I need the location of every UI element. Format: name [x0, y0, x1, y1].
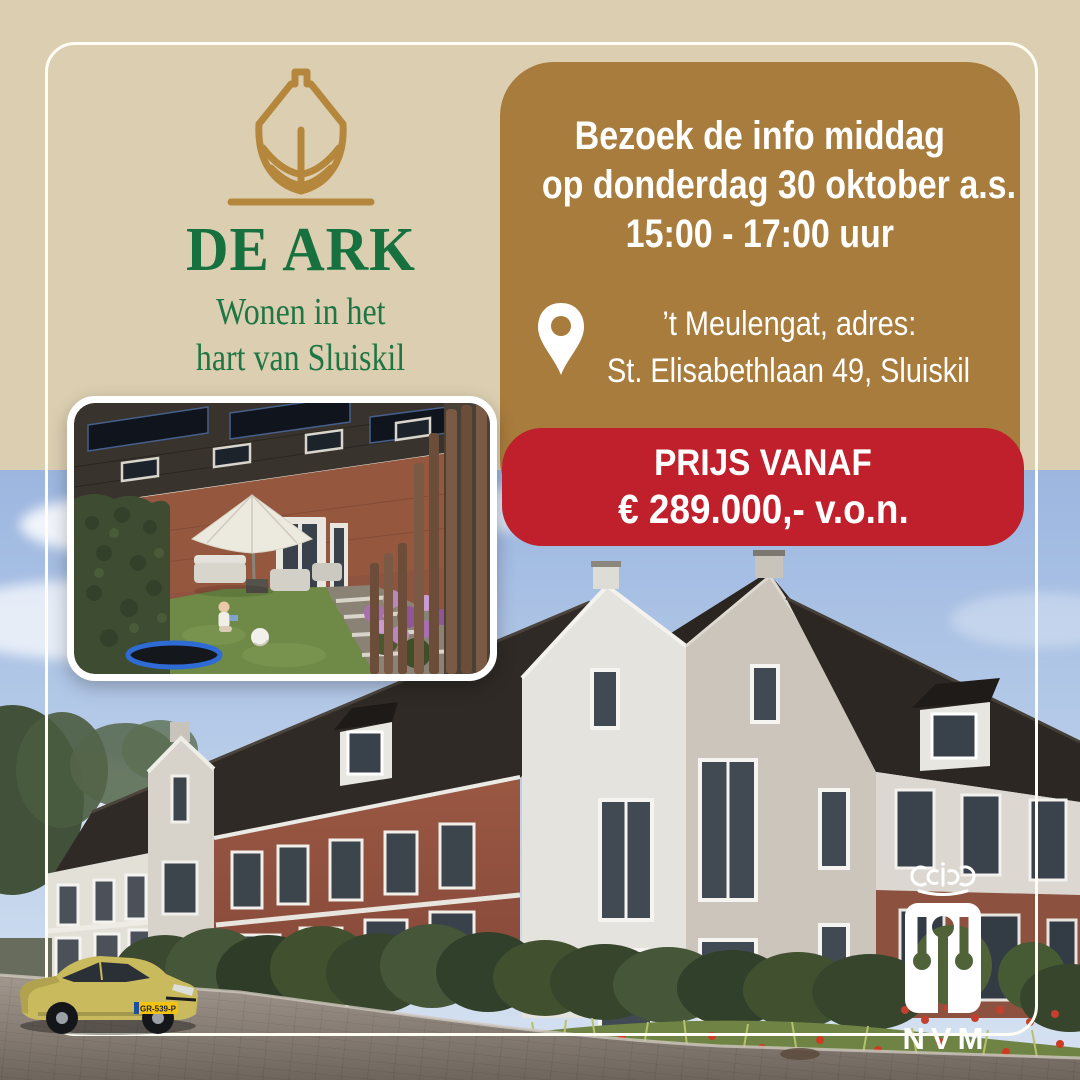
- garden-photo: [67, 396, 497, 681]
- nvm-pictogram-icon: [905, 903, 981, 1013]
- car: GR-539-P: [8, 938, 208, 1038]
- info-line-3: 15:00 - 17:00 uur: [500, 210, 1020, 259]
- trampoline: [128, 643, 220, 667]
- flyer: DE ARK Wonen in het hart van Sluiskil Be…: [0, 0, 1080, 1080]
- brand-tagline: Wonen in het hart van Sluiskil: [136, 289, 466, 381]
- info-line-1: Bezoek de info middag: [500, 112, 1020, 161]
- info-line-2: op donderdag 30 oktober a.s.: [500, 161, 1020, 210]
- location-block: ’t Meulengat, adres: St. Elisabethlaan 4…: [500, 301, 1020, 395]
- nvm-crown-icon: [905, 860, 981, 898]
- price-value: € 289.000,- v.o.n.: [502, 485, 1024, 533]
- svg-text:GR-539-P: GR-539-P: [140, 1005, 177, 1014]
- brand-title: DE ARK: [136, 219, 466, 281]
- location-line-2: St. Elisabethlaan 49, Sluiskil: [558, 348, 1020, 395]
- brand-block: DE ARK Wonen in het hart van Sluiskil: [136, 60, 466, 381]
- location-pin-icon: [536, 301, 586, 379]
- ark-ship-icon: [191, 60, 411, 210]
- license-plate: GR-539-P: [134, 1002, 178, 1014]
- nvm-logo: NVM: [893, 860, 993, 1056]
- location-line-1: ’t Meulengat, adres:: [558, 301, 1020, 348]
- price-box: PRIJS VANAF € 289.000,- v.o.n.: [502, 428, 1024, 546]
- football: [251, 628, 269, 646]
- nvm-wordmark: NVM: [899, 1022, 993, 1056]
- price-label: PRIJS VANAF: [502, 441, 1024, 485]
